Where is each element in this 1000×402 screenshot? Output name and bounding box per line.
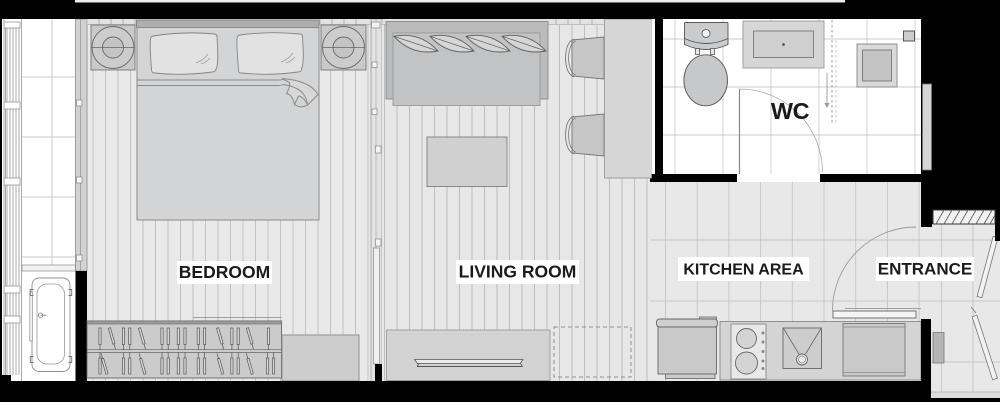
svg-text:BEDROOM: BEDROOM bbox=[179, 262, 270, 282]
svg-text:ENTRANCE: ENTRANCE bbox=[878, 260, 972, 279]
svg-text:WC: WC bbox=[771, 98, 810, 124]
svg-text:KITCHEN AREA: KITCHEN AREA bbox=[683, 262, 804, 279]
svg-text:LIVING ROOM: LIVING ROOM bbox=[459, 262, 577, 282]
